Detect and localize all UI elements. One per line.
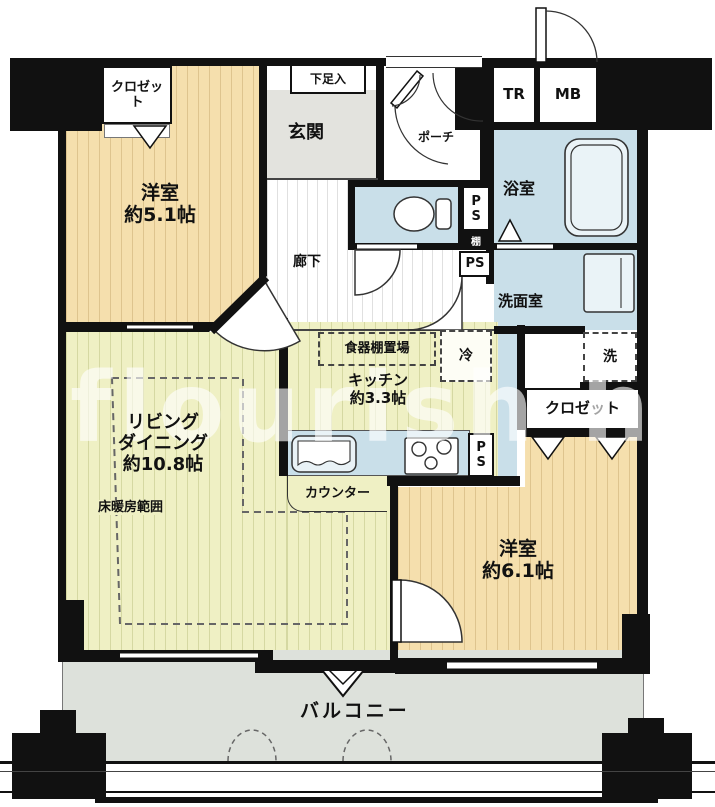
bedroom-small-label: 洋室 約5.1帖 bbox=[85, 182, 235, 227]
meter-box-label: MB bbox=[555, 86, 581, 104]
living-dining-name-2: ダイニング bbox=[88, 433, 238, 454]
porch-arc-large-icon bbox=[433, 73, 483, 121]
trunk-room-label: TR bbox=[503, 86, 525, 104]
bedroom-large-door-leaf-icon bbox=[392, 580, 401, 642]
bedroom-small-name: 洋室 bbox=[85, 182, 235, 204]
living-dining-size: 約10.8帖 bbox=[88, 454, 238, 475]
meter-box: MB bbox=[538, 66, 598, 124]
bedroom-large-size: 約6.1帖 bbox=[443, 560, 593, 582]
cupboard-space-box: 食器棚置場 bbox=[318, 332, 436, 366]
washer-space-box: 洗 bbox=[583, 332, 637, 382]
counter-block: カウンター bbox=[287, 476, 387, 512]
toilet-door-swing-icon bbox=[355, 250, 400, 295]
closet-fold-door-icon bbox=[134, 126, 166, 148]
bedroom-small-size: 約5.1帖 bbox=[85, 204, 235, 226]
cupboard-space-label: 食器棚置場 bbox=[344, 341, 409, 356]
kitchen-name: キッチン bbox=[320, 372, 436, 390]
balcony-partition-swing-icon bbox=[228, 730, 276, 761]
kitchen-label: キッチン 約3.3帖 bbox=[320, 372, 436, 407]
pipe-space-box-2: PS bbox=[459, 251, 491, 277]
refrigerator-space-box: 冷 bbox=[440, 330, 492, 382]
pipe-space-label: PS bbox=[468, 194, 483, 224]
unit-entry-door-swing-icon bbox=[546, 11, 597, 62]
bathroom-label: 浴室 bbox=[503, 180, 535, 199]
unit-entry-door-leaf-icon bbox=[536, 8, 546, 62]
vanity-icon bbox=[584, 254, 634, 312]
kitchen-sink-basin-icon bbox=[298, 441, 350, 465]
bathtub-icon bbox=[565, 139, 628, 236]
pipe-space-label: PS bbox=[466, 256, 485, 271]
bedroom-large-door-swing-icon bbox=[400, 580, 462, 642]
floorplan: クロゼット 下足入 TR MB PS 棚 PS PS 食器棚置場 冷 洗 クロゼ… bbox=[0, 0, 715, 807]
bath-door-triangle-icon bbox=[499, 220, 521, 241]
refrigerator-space-label: 冷 bbox=[459, 348, 473, 365]
bedroom-large-name: 洋室 bbox=[443, 538, 593, 560]
closet-fold-door-icon bbox=[532, 437, 564, 459]
trunk-room-box: TR bbox=[492, 66, 536, 124]
washer-space-label: 洗 bbox=[603, 349, 617, 366]
shoe-cabinet-label: 下足入 bbox=[310, 72, 346, 86]
closet-right-label: クロゼット bbox=[545, 400, 620, 418]
shelf-box: 棚 bbox=[462, 231, 490, 249]
balcony-label: バルコニー bbox=[300, 700, 410, 722]
pipe-space-box-3: PS bbox=[468, 433, 494, 477]
closet-top-left-label: クロゼット bbox=[109, 80, 165, 111]
pipe-space-label: PS bbox=[473, 440, 488, 470]
closet-fold-door-icon bbox=[596, 437, 628, 459]
shelf-label: 棚 bbox=[471, 233, 481, 248]
entrance-label: 玄関 bbox=[288, 122, 324, 143]
porch-label: ポーチ bbox=[418, 130, 454, 144]
closet-right-box: クロゼット bbox=[525, 388, 640, 430]
pipe-space-box-1: PS bbox=[462, 186, 490, 231]
kitchen-size: 約3.3帖 bbox=[320, 390, 436, 408]
closet-top-left-box: クロゼット bbox=[102, 66, 172, 124]
hallway-label: 廊下 bbox=[293, 254, 321, 271]
entrance-door-leaf-icon bbox=[391, 71, 423, 108]
floor-heating-label: 床暖房範囲 bbox=[96, 500, 165, 515]
toilet-tank-icon bbox=[436, 199, 451, 229]
bedroom-large-label: 洋室 約6.1帖 bbox=[443, 538, 593, 583]
living-dining-name-1: リビング bbox=[88, 412, 238, 433]
balcony-partition-swing-icon bbox=[343, 730, 391, 761]
counter-label: カウンター bbox=[305, 486, 370, 501]
toilet-bowl-icon bbox=[394, 197, 434, 231]
shoe-cabinet-box: 下足入 bbox=[290, 64, 366, 94]
washroom-label: 洗面室 bbox=[498, 293, 543, 311]
living-dining-label: リビング ダイニング 約10.8帖 bbox=[88, 412, 238, 476]
washroom-door-swing-icon bbox=[408, 276, 462, 330]
